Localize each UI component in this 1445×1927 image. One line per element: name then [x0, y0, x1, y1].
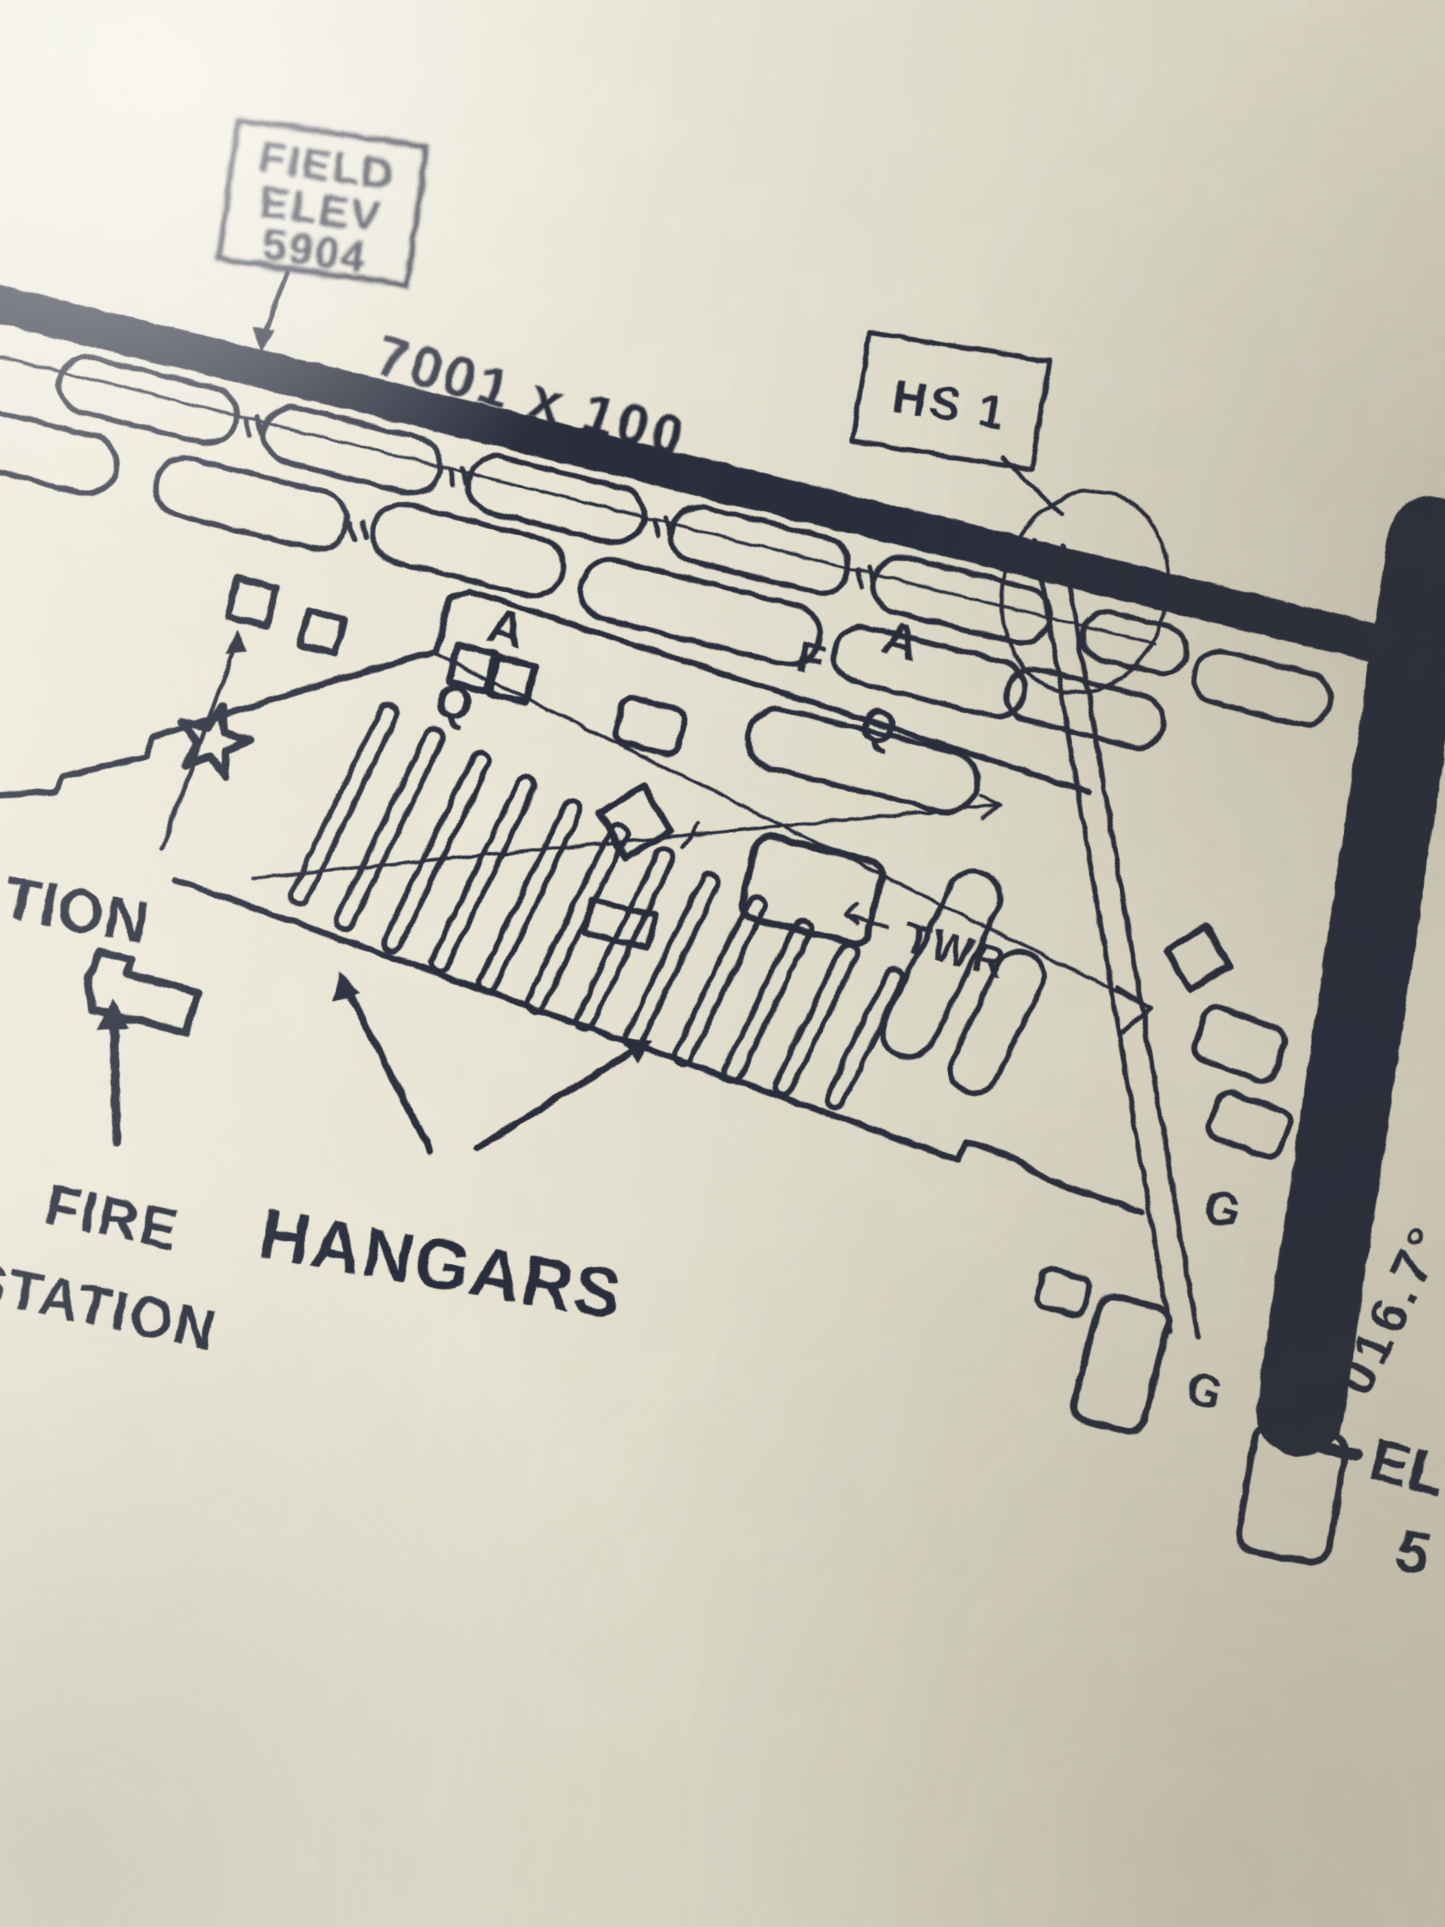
fire-station-arrow [114, 1024, 117, 1142]
airport-diagram: FIELD ELEV 5904 7001 x 100 HS 1 A Q F A … [0, 0, 1445, 1927]
paper-photo: FIELD ELEV 5904 7001 x 100 HS 1 A Q F A … [0, 0, 1445, 1927]
